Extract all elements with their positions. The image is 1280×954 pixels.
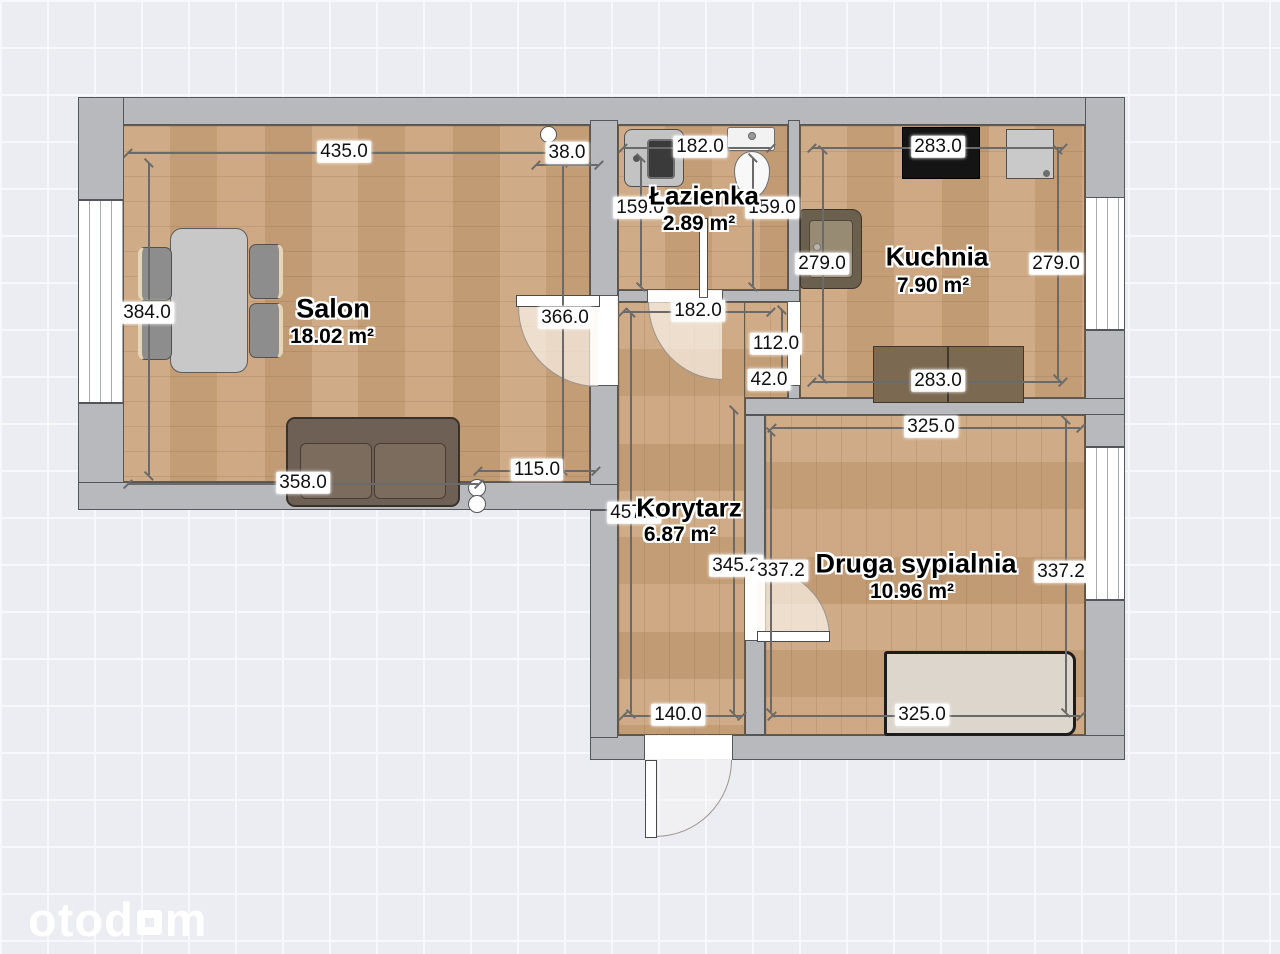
dim-label-salon-bottom: 358.0 (276, 472, 330, 494)
dim-label-kitchen-right: 279.0 (1029, 253, 1083, 275)
salon-label: Salon (296, 294, 370, 325)
dim-label-kitchen-top: 283.0 (911, 136, 965, 158)
dim-label-bath-top: 182.0 (673, 136, 727, 158)
wall-bottom-left (590, 735, 645, 760)
bedroom-window (1085, 447, 1125, 600)
sofa-cushion (374, 443, 446, 499)
floor-plan: 435.0 38.0 182.0 283.0 384.0 366.0 159.0… (0, 0, 1280, 954)
dim-label-salon-door-top: 38.0 (546, 142, 589, 164)
entrance-door-leaf (645, 760, 657, 838)
wall-corridor-bedroom-upper (745, 415, 765, 565)
dim-line (752, 158, 754, 286)
wall-corridor-left-lower (590, 510, 618, 738)
entrance-door-swing-arc (655, 760, 732, 837)
salon-door-leaf (516, 295, 600, 307)
wall-right-mid (1085, 330, 1125, 447)
dining-chair (249, 303, 283, 358)
watermark-text-before: otod (28, 892, 134, 947)
kitchen-area: 7.90 m² (897, 274, 969, 298)
dim-label-bedroom-top: 325.0 (904, 416, 958, 438)
corridor-label: Korytarz (636, 493, 741, 524)
watermark-text-after: m (165, 892, 208, 947)
dim-label-kitchen-bottom: 283.0 (911, 370, 965, 392)
otodom-watermark: otodm (28, 892, 208, 947)
toilet-button (748, 132, 756, 140)
dim-label-corridor-bottom: 140.0 (651, 704, 705, 726)
wall-bottom-right (732, 735, 1125, 760)
dining-chair (138, 247, 172, 301)
fridge-handle (1043, 170, 1050, 177)
watermark-square-glyph (137, 910, 162, 935)
entrance-opening (645, 736, 732, 759)
dim-label-bedroom-bottom: 325.0 (895, 704, 949, 726)
wall-corridor-bedroom-lower (745, 640, 765, 735)
dim-label-passage-stub: 42.0 (748, 369, 791, 391)
wall-bathroom-bottom-left (618, 290, 648, 302)
fridge (1006, 129, 1054, 179)
dim-label-bedroom-left: 337.2 (754, 560, 808, 582)
dim-label-passage-height: 112.0 (750, 333, 802, 355)
door-hinge-dot (468, 495, 486, 513)
salon-area: 18.02 m² (290, 325, 374, 349)
wall-left-upper (78, 97, 124, 200)
dim-label-salon-left: 384.0 (120, 302, 174, 324)
kitchen-label: Kuchnia (886, 242, 989, 273)
kitchen-faucet (813, 243, 821, 251)
bedroom-area: 10.96 m² (870, 580, 954, 604)
washing-machine-door (647, 139, 675, 179)
wall-right-top (1085, 97, 1125, 198)
dining-chair (249, 244, 283, 299)
bathroom-area: 2.89 m² (663, 212, 735, 236)
bedroom-label: Druga sypialnia (815, 549, 1016, 580)
salon-window (78, 200, 124, 403)
dim-label-bedroom-right: 337.2 (1034, 561, 1088, 583)
kitchen-sink-cabinet (800, 209, 862, 289)
dim-label-salon-right: 366.0 (538, 307, 592, 329)
kitchen-window (1085, 197, 1125, 330)
dim-label-salon-bottom-right: 115.0 (511, 459, 563, 481)
dim-line (640, 158, 642, 286)
corridor-area: 6.87 m² (644, 523, 716, 547)
door-hinge-dot (540, 126, 557, 143)
dim-label-kitchen-left: 279.0 (795, 253, 849, 275)
bathroom-label: Łazienka (649, 181, 759, 212)
dim-label-bath-door: 182.0 (671, 300, 725, 322)
wall-bathroom-bottom-right (722, 290, 800, 302)
dim-label-salon-top: 435.0 (317, 141, 371, 163)
dining-table (170, 228, 248, 373)
bedroom-door-leaf (757, 631, 830, 642)
